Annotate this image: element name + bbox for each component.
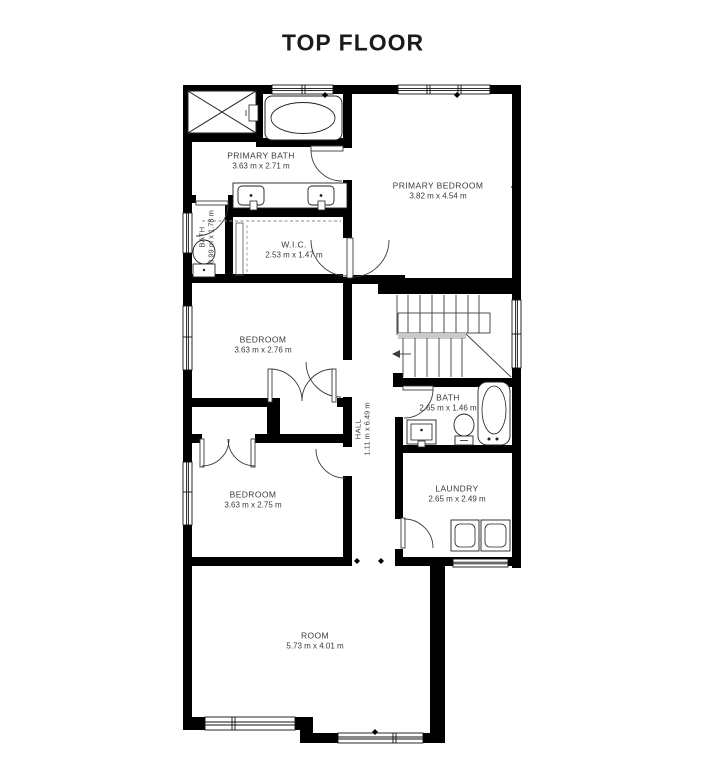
wall-bedroom2-bottom [183,557,352,566]
door-swing-icon [311,238,389,278]
room-name: HALL [354,402,363,455]
room-dims: 3.82 m x 4.54 m [393,191,484,201]
room-name: BATH [198,210,207,264]
door-swing-icon [311,146,343,181]
room-label-primary-bedroom: PRIMARY BEDROOM 3.82 m x 4.54 m [393,181,484,202]
room-label-laundry: LAUNDRY 2.65 m x 2.49 m [428,484,485,505]
room-name: BATH [419,393,476,404]
bathtub-icon [265,96,342,140]
room-dims: 1.11 m x 6.49 m [363,402,372,455]
toilet-icon [454,414,474,445]
washer-icon [451,520,479,551]
room-name: BEDROOM [224,490,281,501]
room-label-bath-small: BATH 0.99 m x 1.78 m [198,210,217,264]
wall-bedroom1-bottom-stub [337,398,352,407]
wall-divider [343,476,352,557]
sink-icon [407,420,436,447]
room-dims: 5.73 m x 4.01 m [286,641,343,651]
wall-closet-divider [267,398,280,443]
closet-double-door-icon [200,439,255,467]
wall-vanity [225,208,352,217]
stair-direction-arrow-icon [392,350,411,358]
wall-bedroom1-bottom [183,398,267,407]
room-dims: 2.65 m x 2.49 m [428,494,485,504]
sink-icon [233,183,347,210]
window-icon [183,306,192,370]
window-icon [453,559,508,567]
wall-divider [343,283,352,360]
room-name: ROOM [286,631,343,642]
wall-bath-laundry-divider [395,445,521,453]
window-icon [183,462,192,525]
room-name: PRIMARY BATH [227,151,295,162]
window-icon [398,85,490,94]
window-icon [338,733,423,743]
window-icon [205,717,295,730]
room-dims: 0.99 m x 1.78 m [207,210,216,264]
bathtub-icon [478,382,510,445]
door-swing-icon [401,518,433,548]
room-dims: 3.63 m x 2.75 m [224,500,281,510]
shower-icon [188,91,258,133]
room-dims: 2.65 m x 1.46 m [419,403,476,413]
wall-step [300,717,313,743]
room-name: W.I.C. [265,240,322,251]
floor-plan-drawing [0,0,713,781]
room-name: PRIMARY BEDROOM [393,181,484,192]
floor-plan-page: TOP FLOOR [0,0,713,781]
window-icon [183,213,192,253]
room-dims: 3.63 m x 2.71 m [227,161,295,171]
wall-stair-stub [393,373,403,385]
wall-closet-bottom-stub [183,434,202,443]
room-label-primary-bath: PRIMARY BATH 3.63 m x 2.71 m [227,151,295,172]
room-name: LAUNDRY [428,484,485,495]
room-dims: 3.63 m x 2.76 m [234,345,291,355]
door-swing-icon [316,449,345,478]
window-icon [272,85,333,94]
closet-double-door-icon [268,369,336,402]
room-label-wic: W.I.C. 2.53 m x 1.47 m [265,240,322,261]
room-label-bath: BATH 2.65 m x 1.46 m [419,393,476,414]
room-label-bedroom-2: BEDROOM 3.63 m x 2.75 m [224,490,281,511]
dryer-icon [481,520,510,551]
room-label-bedroom-1: BEDROOM 3.63 m x 2.76 m [234,335,291,356]
room-dims: 2.53 m x 1.47 m [265,250,322,260]
stairs-icon [392,295,511,377]
wall-closet-bottom [280,434,352,443]
wall-left [183,85,192,730]
wall-closet-bottom-stub [255,434,267,443]
room-name: BEDROOM [234,335,291,346]
room-label-hall: HALL 1.11 m x 6.49 m [354,402,373,455]
wall-room-right [430,562,445,743]
room-label-room: ROOM 5.73 m x 4.01 m [286,631,343,652]
wall-shower-bottom [183,133,263,142]
window-icon [512,300,521,368]
